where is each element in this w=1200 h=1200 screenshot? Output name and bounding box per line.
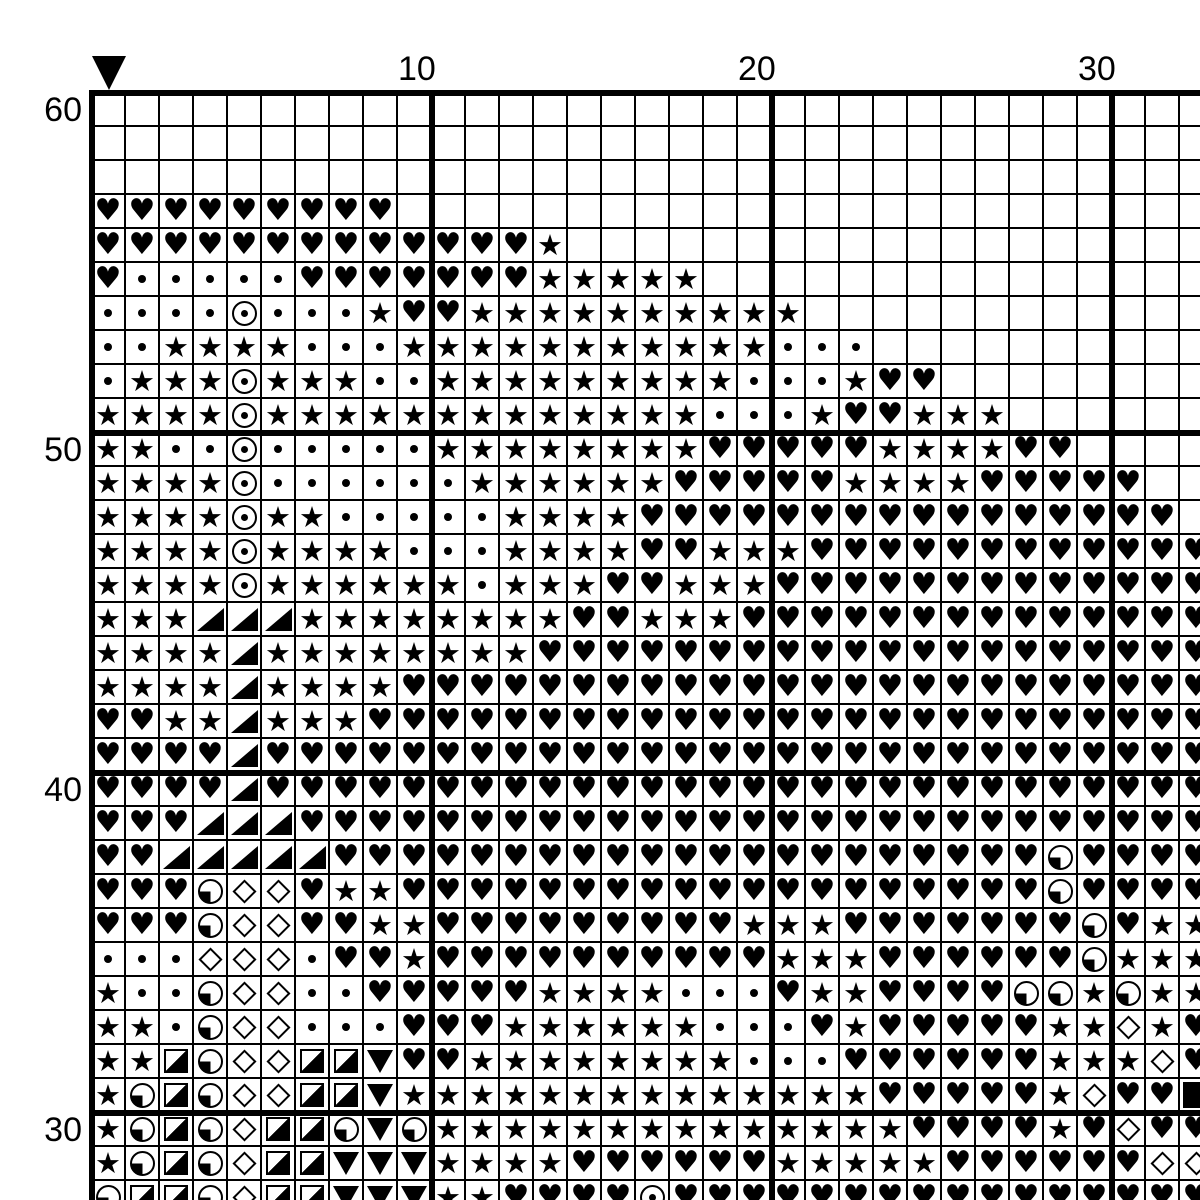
- symbol-black-star-icon: ★: [469, 298, 495, 328]
- symbol-black-heart-icon: ♥: [979, 570, 1006, 600]
- grid-cell: [772, 365, 806, 399]
- symbol-small-dot-icon: [444, 547, 452, 555]
- grid-cell: ♥: [942, 569, 976, 603]
- grid-cell: ★: [568, 1113, 602, 1147]
- grid-cell: ★: [738, 909, 772, 943]
- grid-cell: ★: [160, 569, 194, 603]
- grid-cell: [806, 93, 840, 127]
- symbol-black-heart-icon: ♥: [911, 1046, 938, 1076]
- grid-cell: ★: [602, 467, 636, 501]
- symbol-black-heart-icon: ♥: [775, 502, 802, 532]
- symbol-black-star-icon: ★: [979, 400, 1005, 430]
- grid-cell: ♥: [568, 739, 602, 773]
- grid-cell: ★: [296, 637, 330, 671]
- symbol-black-heart-icon: ♥: [197, 774, 224, 804]
- grid-cell: [466, 127, 500, 161]
- symbol-black-star-icon: ★: [741, 1114, 767, 1144]
- grid-cell: [1044, 875, 1078, 909]
- grid-cell: ★: [602, 977, 636, 1011]
- symbol-black-heart-icon: ♥: [741, 842, 768, 872]
- grid-cell: ★: [704, 1045, 738, 1079]
- symbol-black-heart-icon: ♥: [435, 808, 462, 838]
- grid-cell: [704, 1011, 738, 1045]
- grid-cell: ★: [704, 603, 738, 637]
- grid-cell: [466, 195, 500, 229]
- symbol-black-heart-icon: ♥: [435, 264, 462, 294]
- symbol-black-heart-icon: ♥: [809, 740, 836, 770]
- grid-cell: [1078, 195, 1112, 229]
- grid-cell: ♥: [364, 943, 398, 977]
- grid-cell: ★: [636, 1045, 670, 1079]
- symbol-black-heart-icon: ♥: [435, 944, 462, 974]
- circled-dot-center: [241, 514, 248, 521]
- symbol-black-heart-icon: ♥: [877, 1046, 904, 1076]
- grid-cell: [262, 263, 296, 297]
- symbol-black-star-icon: ★: [537, 1114, 563, 1144]
- grid-cell: ★: [568, 433, 602, 467]
- symbol-black-star-icon: ★: [367, 910, 393, 940]
- grid-cell: [194, 127, 228, 161]
- grid-cell: ♥: [874, 773, 908, 807]
- grid-cell: [1010, 977, 1044, 1011]
- symbol-black-heart-icon: ♥: [775, 638, 802, 668]
- symbol-black-star-icon: ★: [809, 944, 835, 974]
- grid-cell: [126, 161, 160, 195]
- grid-cell: ★: [670, 603, 704, 637]
- grid-cell: ♥: [806, 1011, 840, 1045]
- grid-cell: ♥: [296, 807, 330, 841]
- symbol-black-heart-icon: ♥: [129, 876, 156, 906]
- symbol-black-heart-icon: ♥: [911, 672, 938, 702]
- grid-cell: ♥: [806, 501, 840, 535]
- grid-cell: [160, 1181, 194, 1200]
- grid-cell: ♥: [704, 841, 738, 875]
- symbol-black-heart-icon: ♥: [639, 1148, 666, 1178]
- grid-cell: [194, 1045, 228, 1079]
- grid-cell: [500, 195, 534, 229]
- symbol-black-heart-icon: ♥: [945, 876, 972, 906]
- grid-cell: [534, 195, 568, 229]
- grid-cell: ♥: [160, 195, 194, 229]
- grid-cell: [908, 93, 942, 127]
- symbol-black-down-triangle-icon: [333, 1186, 359, 1200]
- grid-cell: ★: [1146, 909, 1180, 943]
- grid-cell: [738, 977, 772, 1011]
- symbol-black-star-icon: ★: [639, 400, 665, 430]
- grid-cell: ♥: [534, 875, 568, 909]
- grid-cell: [942, 161, 976, 195]
- grid-cell: ★: [534, 1011, 568, 1045]
- grid-cell: ♥: [398, 263, 432, 297]
- grid-cell: [1044, 977, 1078, 1011]
- symbol-circled-dot-icon: [232, 437, 257, 462]
- symbol-black-heart-icon: ♥: [537, 944, 564, 974]
- grid-cell: ★: [296, 399, 330, 433]
- grid-cell: [194, 263, 228, 297]
- grid-cell: ★: [194, 331, 228, 365]
- grid-cell: [1078, 365, 1112, 399]
- grid-cell: [228, 1011, 262, 1045]
- symbol-small-dot-icon: [342, 479, 350, 487]
- symbol-black-star-icon: ★: [367, 570, 393, 600]
- symbol-black-heart-icon: ♥: [1115, 1182, 1142, 1200]
- grid-cell: [942, 365, 976, 399]
- grid-cell: [160, 1147, 194, 1181]
- grid-cell: [1146, 263, 1180, 297]
- symbol-diamond-outline-icon: [232, 1049, 256, 1073]
- grid-cell: ♥: [908, 1181, 942, 1200]
- grid-cell: ♥: [602, 875, 636, 909]
- grid-cell: ♥: [1044, 433, 1078, 467]
- symbol-black-heart-icon: ♥: [911, 808, 938, 838]
- grid-cell: ♥: [1078, 1147, 1112, 1181]
- grid-cell: [228, 671, 262, 705]
- symbol-black-heart-icon: ♥: [571, 774, 598, 804]
- symbol-black-heart-icon: ♥: [1081, 842, 1108, 872]
- symbol-black-heart-icon: ♥: [537, 672, 564, 702]
- grid-cell: [398, 365, 432, 399]
- symbol-black-heart-icon: ♥: [469, 910, 496, 940]
- symbol-small-dot-icon: [478, 513, 486, 521]
- grid-cell: [398, 501, 432, 535]
- grid-cell: ♥: [602, 739, 636, 773]
- symbol-black-heart-icon: ♥: [843, 434, 870, 464]
- grid-cell: [398, 161, 432, 195]
- grid-cell: ♥: [908, 671, 942, 705]
- symbol-black-heart-icon: ♥: [911, 1080, 938, 1110]
- symbol-black-star-icon: ★: [843, 944, 869, 974]
- grid-cell: ♥: [840, 739, 874, 773]
- grid-cell: ★: [1146, 943, 1180, 977]
- symbol-small-dot-icon: [172, 309, 180, 317]
- grid-cell: [262, 1045, 296, 1079]
- grid-cell: [228, 467, 262, 501]
- symbol-black-square-icon: [1183, 1082, 1200, 1108]
- grid-cell: ♥: [636, 943, 670, 977]
- grid-cell: ♥: [908, 841, 942, 875]
- symbol-black-heart-icon: ♥: [1149, 808, 1176, 838]
- grid-cell: ★: [772, 1147, 806, 1181]
- symbol-black-star-icon: ★: [95, 536, 121, 566]
- symbol-black-heart-icon: ♥: [775, 672, 802, 702]
- symbol-black-star-icon: ★: [401, 638, 427, 668]
- grid-cell: ♥: [738, 433, 772, 467]
- grid-cell: ♥: [636, 875, 670, 909]
- symbol-black-heart-icon: ♥: [367, 774, 394, 804]
- symbol-black-star-icon: ★: [775, 298, 801, 328]
- grid-cell: ♥: [636, 501, 670, 535]
- symbol-diamond-outline-icon: [266, 1015, 290, 1039]
- grid-cell: ★: [568, 535, 602, 569]
- symbol-black-heart-icon: ♥: [95, 740, 122, 770]
- grid-cell: ★: [330, 365, 364, 399]
- symbol-black-heart-icon: ♥: [843, 672, 870, 702]
- symbol-black-star-icon: ★: [469, 1148, 495, 1178]
- symbol-black-star-icon: ★: [435, 400, 461, 430]
- grid-thick-line-row30: [89, 1110, 1200, 1116]
- grid-cell: ★: [602, 535, 636, 569]
- symbol-small-dot-icon: [750, 411, 758, 419]
- symbol-black-heart-icon: ♥: [741, 1182, 768, 1200]
- grid-cell: [126, 1079, 160, 1113]
- grid-cell: ★: [92, 637, 126, 671]
- grid-cell: [840, 263, 874, 297]
- grid-cell: [1010, 229, 1044, 263]
- symbol-black-heart-icon: ♥: [503, 230, 530, 260]
- grid-cell: ♥: [432, 671, 466, 705]
- symbol-black-heart-icon: ♥: [1081, 740, 1108, 770]
- grid-cell: ♥: [874, 399, 908, 433]
- column-label-10: 10: [398, 50, 432, 88]
- symbol-black-star-icon: ★: [333, 366, 359, 396]
- symbol-black-heart-icon: ♥: [367, 706, 394, 736]
- grid-cell: [262, 1147, 296, 1181]
- grid-cell: ♥: [1146, 841, 1180, 875]
- grid-cell: ♥: [92, 875, 126, 909]
- symbol-circle-lower-left-quarter-icon: [1048, 981, 1073, 1006]
- grid-cell: [1078, 433, 1112, 467]
- grid-cell: [1180, 161, 1200, 195]
- symbol-black-star-icon: ★: [605, 1012, 631, 1042]
- symbol-black-heart-icon: ♥: [979, 1046, 1006, 1076]
- symbol-small-dot-icon: [138, 343, 146, 351]
- symbol-black-star-icon: ★: [605, 536, 631, 566]
- grid-cell: ♥: [364, 263, 398, 297]
- symbol-black-heart-icon: ♥: [503, 944, 530, 974]
- symbol-black-heart-icon: ♥: [1149, 842, 1176, 872]
- grid-cell: [466, 569, 500, 603]
- symbol-small-dot-icon: [750, 1057, 758, 1065]
- grid-cell: ♥: [942, 841, 976, 875]
- symbol-black-heart-icon: ♥: [707, 434, 734, 464]
- symbol-small-dot-icon: [376, 445, 384, 453]
- grid-cell: ★: [704, 569, 738, 603]
- symbol-black-star-icon: ★: [469, 366, 495, 396]
- symbol-black-star-icon: ★: [469, 332, 495, 362]
- symbol-circle-lower-left-quarter-icon: [1082, 913, 1107, 938]
- symbol-black-star-icon: ★: [605, 468, 631, 498]
- grid-cell: ★: [772, 297, 806, 331]
- symbol-black-heart-icon: ♥: [605, 1148, 632, 1178]
- symbol-black-star-icon: ★: [571, 1114, 597, 1144]
- symbol-black-heart-icon: ♥: [911, 978, 938, 1008]
- grid-cell: ★: [296, 365, 330, 399]
- symbol-black-star-icon: ★: [469, 434, 495, 464]
- grid-cell: ♥: [636, 535, 670, 569]
- symbol-black-star-icon: ★: [605, 264, 631, 294]
- grid-cell: [364, 365, 398, 399]
- grid-cell: ♥: [296, 909, 330, 943]
- grid-cell: ★: [432, 637, 466, 671]
- grid-cell: [908, 161, 942, 195]
- symbol-small-dot-icon: [478, 581, 486, 589]
- symbol-black-heart-icon: ♥: [639, 944, 666, 974]
- symbol-black-star-icon: ★: [95, 638, 121, 668]
- grid-cell: ♥: [194, 195, 228, 229]
- symbol-black-star-icon: ★: [775, 910, 801, 940]
- symbol-black-heart-icon: ♥: [1115, 468, 1142, 498]
- symbol-black-star-icon: ★: [435, 638, 461, 668]
- symbol-black-heart-icon: ♥: [95, 264, 122, 294]
- grid-cell: ★: [636, 263, 670, 297]
- symbol-black-heart-icon: ♥: [1115, 502, 1142, 532]
- grid-cell: [262, 1181, 296, 1200]
- grid-cell: [772, 93, 806, 127]
- grid-cell: [840, 229, 874, 263]
- grid-cell: ♥: [840, 1181, 874, 1200]
- grid-cell: ★: [92, 1079, 126, 1113]
- symbol-black-heart-icon: ♥: [1115, 876, 1142, 906]
- grid-cell: [1146, 331, 1180, 365]
- grid-cell: ★: [636, 297, 670, 331]
- grid-cell: [330, 161, 364, 195]
- symbol-black-star-icon: ★: [571, 366, 597, 396]
- grid-cell: ★: [160, 501, 194, 535]
- symbol-black-heart-icon: ♥: [945, 808, 972, 838]
- symbol-circled-dot-icon: [232, 369, 257, 394]
- symbol-black-heart-icon: ♥: [129, 230, 156, 260]
- symbol-black-heart-icon: ♥: [571, 876, 598, 906]
- grid-cell: [364, 1011, 398, 1045]
- grid-cell: ★: [398, 1079, 432, 1113]
- grid-cell: ♥: [432, 909, 466, 943]
- symbol-black-heart-icon: ♥: [163, 808, 190, 838]
- symbol-black-star-icon: ★: [503, 536, 529, 566]
- symbol-black-heart-icon: ♥: [1183, 536, 1200, 566]
- grid-cell: ♥: [534, 841, 568, 875]
- symbol-black-star-icon: ★: [95, 400, 121, 430]
- symbol-black-star-icon: ★: [775, 1114, 801, 1144]
- grid-cell: ♥: [806, 535, 840, 569]
- grid-cell: ♥: [738, 943, 772, 977]
- symbol-black-star-icon: ★: [163, 400, 189, 430]
- symbol-black-star-icon: ★: [435, 366, 461, 396]
- symbol-black-heart-icon: ♥: [435, 876, 462, 906]
- grid-cell: ★: [296, 501, 330, 535]
- grid-cell: ♥: [466, 229, 500, 263]
- grid-cell: ♥: [398, 739, 432, 773]
- symbol-black-star-icon: ★: [979, 434, 1005, 464]
- symbol-small-dot-icon: [104, 955, 112, 963]
- grid-thick-line-row10: [89, 430, 1200, 436]
- grid-cell: ♥: [840, 535, 874, 569]
- grid-cell: [806, 127, 840, 161]
- symbol-black-heart-icon: ♥: [979, 876, 1006, 906]
- grid-cell: ♥: [1146, 773, 1180, 807]
- grid-cell: ♥: [976, 1147, 1010, 1181]
- grid-cell: ♥: [1044, 467, 1078, 501]
- grid-cell: ♥: [738, 1147, 772, 1181]
- symbol-black-star-icon: ★: [333, 638, 359, 668]
- symbol-small-dot-icon: [716, 989, 724, 997]
- symbol-black-lower-right-triangle-icon: [231, 608, 258, 631]
- symbol-black-heart-icon: ♥: [503, 1182, 530, 1200]
- grid-cell: ★: [466, 365, 500, 399]
- symbol-black-heart-icon: ♥: [1183, 604, 1200, 634]
- symbol-black-star-icon: ★: [673, 1080, 699, 1110]
- grid-cell: [806, 229, 840, 263]
- grid-cell: [704, 399, 738, 433]
- symbol-black-star-icon: ★: [707, 604, 733, 634]
- grid-thick-line-col20: [769, 90, 775, 1200]
- symbol-black-heart-icon: ♥: [979, 706, 1006, 736]
- grid-cell: [1044, 331, 1078, 365]
- symbol-black-heart-icon: ♥: [979, 502, 1006, 532]
- grid-cell: [296, 943, 330, 977]
- grid-cell: [772, 1045, 806, 1079]
- grid-cell: ★: [636, 1113, 670, 1147]
- grid-cell: ♥: [840, 909, 874, 943]
- symbol-black-star-icon: ★: [707, 366, 733, 396]
- grid-cell: [636, 229, 670, 263]
- symbol-black-heart-icon: ♥: [979, 468, 1006, 498]
- grid-cell: [874, 229, 908, 263]
- symbol-black-star-icon: ★: [469, 1182, 495, 1200]
- grid-cell: [194, 1147, 228, 1181]
- symbol-small-dot-icon: [478, 547, 486, 555]
- symbol-circle-lower-left-quarter-icon: [198, 879, 223, 904]
- grid-cell: ♥: [466, 739, 500, 773]
- grid-cell: ♥: [908, 875, 942, 909]
- symbol-small-dot-icon: [784, 1023, 792, 1031]
- grid-cell: ♥: [704, 875, 738, 909]
- grid-cell: ♥: [92, 705, 126, 739]
- grid-cell: [636, 93, 670, 127]
- symbol-black-heart-icon: ♥: [843, 502, 870, 532]
- grid-cell: ♥: [432, 229, 466, 263]
- symbol-black-heart-icon: ♥: [843, 774, 870, 804]
- grid-cell: [534, 127, 568, 161]
- symbol-square-lower-right-half-icon: [164, 1083, 188, 1107]
- symbol-black-heart-icon: ♥: [1115, 842, 1142, 872]
- symbol-black-heart-icon: ♥: [503, 774, 530, 804]
- grid-cell: ♥: [942, 1113, 976, 1147]
- grid-cell: [1010, 161, 1044, 195]
- symbol-diamond-outline-icon: [266, 947, 290, 971]
- grid-cell: ★: [262, 399, 296, 433]
- symbol-black-heart-icon: ♥: [469, 876, 496, 906]
- grid-cell: ♥: [1146, 535, 1180, 569]
- grid-cell: ★: [670, 365, 704, 399]
- grid-cell: ♥: [1180, 1045, 1200, 1079]
- symbol-black-heart-icon: ♥: [979, 1182, 1006, 1200]
- grid-cell: [160, 841, 194, 875]
- symbol-black-star-icon: ★: [605, 1080, 631, 1110]
- symbol-black-star-icon: ★: [197, 366, 223, 396]
- symbol-square-lower-right-half-icon: [164, 1185, 188, 1200]
- symbol-black-lower-right-triangle-icon: [231, 778, 258, 801]
- symbol-black-star-icon: ★: [673, 570, 699, 600]
- grid-cell: ★: [602, 501, 636, 535]
- symbol-black-star-icon: ★: [537, 434, 563, 464]
- grid-cell: ♥: [126, 807, 160, 841]
- grid-cell: ♥: [330, 909, 364, 943]
- row-label-30: 30: [18, 1113, 82, 1147]
- grid-cell: ♥: [296, 773, 330, 807]
- grid-cell: ♥: [602, 1181, 636, 1200]
- grid-cell: ♥: [942, 739, 976, 773]
- grid-cell: ♥: [364, 195, 398, 229]
- symbol-black-heart-icon: ♥: [911, 842, 938, 872]
- grid-cell: ★: [534, 263, 568, 297]
- grid-cell: ♥: [874, 1011, 908, 1045]
- symbol-black-down-triangle-icon: [367, 1118, 393, 1141]
- grid-cell: ♥: [398, 229, 432, 263]
- grid-cell: [908, 229, 942, 263]
- grid-cell: [1078, 229, 1112, 263]
- grid-cell: ♥: [772, 807, 806, 841]
- symbol-black-star-icon: ★: [809, 1114, 835, 1144]
